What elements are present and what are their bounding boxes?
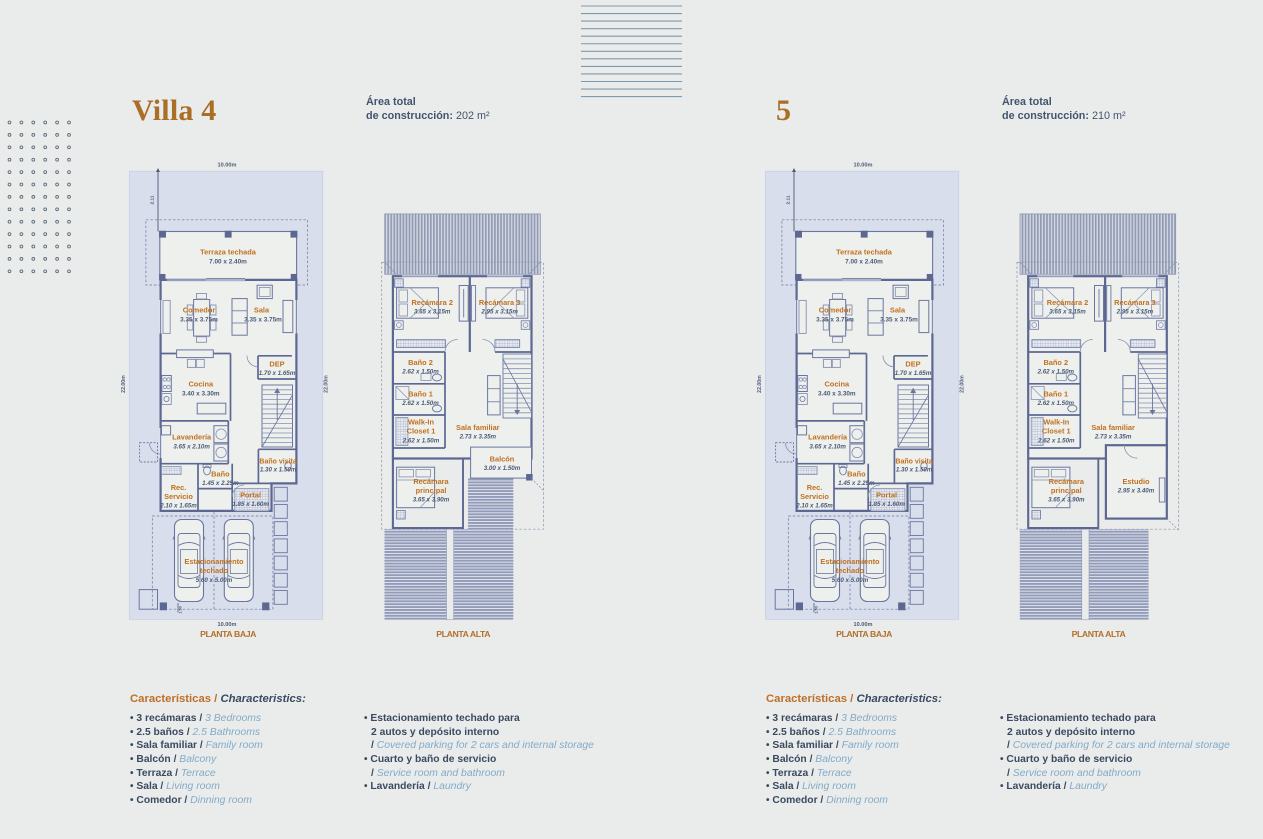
- svg-text:Lavandería: Lavandería: [172, 433, 212, 442]
- svg-text:PLANTA ALTA: PLANTA ALTA: [1072, 629, 1127, 639]
- svg-text:3.65 x 2.10m: 3.65 x 2.10m: [173, 444, 210, 451]
- svg-text:3.65 x 2.10m: 3.65 x 2.10m: [809, 444, 846, 451]
- svg-text:Servicio: Servicio: [800, 492, 829, 501]
- svg-text:22.00m: 22.00m: [757, 375, 763, 393]
- svg-text:1.70 x 1.65m: 1.70 x 1.65m: [895, 370, 932, 377]
- svg-text:PLANTA BAJA: PLANTA BAJA: [200, 629, 257, 639]
- svg-text:3.65 x 3.15m: 3.65 x 3.15m: [414, 309, 451, 316]
- svg-text:Baño: Baño: [847, 470, 866, 479]
- svg-text:3.65 x 3.15m: 3.65 x 3.15m: [1049, 309, 1086, 316]
- svg-text:1.85 x 1.60m: 1.85 x 1.60m: [232, 501, 269, 508]
- svg-text:Sala familiar: Sala familiar: [1091, 423, 1135, 432]
- svg-text:5.60 x 5.00m: 5.60 x 5.00m: [832, 577, 869, 584]
- svg-text:10.00m: 10.00m: [218, 622, 237, 628]
- svg-text:Cocina: Cocina: [824, 380, 850, 389]
- svg-text:10.00m: 10.00m: [854, 622, 873, 628]
- svg-text:22.00m: 22.00m: [324, 375, 330, 393]
- svg-text:Sala: Sala: [254, 306, 270, 315]
- svg-text:Comedor: Comedor: [183, 306, 216, 315]
- svg-text:3.35 x 3.75m: 3.35 x 3.75m: [180, 317, 218, 324]
- svg-text:10.00m: 10.00m: [854, 163, 873, 169]
- svg-text:Closet 1: Closet 1: [1042, 427, 1071, 436]
- svg-text:Recámara 2: Recámara 2: [1047, 298, 1089, 307]
- svg-text:Terraza techada: Terraza techada: [200, 248, 257, 257]
- svg-text:Closet 1: Closet 1: [407, 427, 436, 436]
- svg-text:22.00m: 22.00m: [960, 375, 966, 393]
- svg-text:3.35 x 3.75m: 3.35 x 3.75m: [244, 317, 282, 324]
- svg-text:2.62 x 1.50m: 2.62 x 1.50m: [402, 438, 440, 445]
- svg-text:PLANTA ALTA: PLANTA ALTA: [436, 629, 491, 639]
- svg-text:2.11: 2.11: [150, 195, 156, 204]
- svg-text:techado: techado: [200, 566, 229, 575]
- svg-text:Baño visita: Baño visita: [259, 458, 296, 465]
- svg-text:PLANTA BAJA: PLANTA BAJA: [836, 629, 893, 639]
- svg-text:Rec.: Rec.: [807, 483, 823, 492]
- svg-text:2.62 x 1.50m: 2.62 x 1.50m: [401, 400, 439, 407]
- svg-text:3.40 x 3.30m: 3.40 x 3.30m: [182, 391, 220, 398]
- svg-text:2.62 x 1.50m: 2.62 x 1.50m: [401, 369, 439, 376]
- svg-text:3.40 x 3.30m: 3.40 x 3.30m: [818, 391, 856, 398]
- svg-text:2.73 x 3.35m: 2.73 x 3.35m: [459, 434, 497, 441]
- svg-text:3.00 x 1.50m: 3.00 x 1.50m: [484, 465, 521, 472]
- svg-text:5.60 x 5.00m: 5.60 x 5.00m: [196, 577, 233, 584]
- svg-text:Cocina: Cocina: [188, 380, 214, 389]
- svg-text:2.62 x 1.50m: 2.62 x 1.50m: [1037, 400, 1075, 407]
- svg-text:3.65 x 3.90m: 3.65 x 3.90m: [1048, 497, 1085, 504]
- svg-text:1.30 x 1.50m: 1.30 x 1.50m: [260, 467, 297, 474]
- svg-text:2.62 x 1.50m: 2.62 x 1.50m: [1037, 369, 1075, 376]
- svg-text:22.00m: 22.00m: [121, 375, 127, 393]
- svg-text:3.65 x 3.90m: 3.65 x 3.90m: [413, 497, 450, 504]
- svg-text:Baño 2: Baño 2: [1043, 358, 1068, 367]
- svg-text:Sala familiar: Sala familiar: [456, 423, 500, 432]
- svg-text:2.10 x 1.65m: 2.10 x 1.65m: [795, 503, 833, 510]
- svg-text:3.35 x 3.75m: 3.35 x 3.75m: [880, 317, 918, 324]
- svg-text:Portal: Portal: [876, 491, 897, 500]
- svg-text:Estacionamiento: Estacionamiento: [184, 557, 244, 566]
- svg-text:2.95 x 3.40m: 2.95 x 3.40m: [1117, 488, 1155, 495]
- svg-text:Sala: Sala: [890, 306, 906, 315]
- svg-text:Baño visita: Baño visita: [895, 458, 932, 465]
- svg-text:Recámara: Recámara: [1049, 477, 1085, 486]
- svg-text:1.85 x 1.60m: 1.85 x 1.60m: [868, 501, 905, 508]
- svg-text:Estacionamiento: Estacionamiento: [820, 557, 880, 566]
- svg-text:Baño 2: Baño 2: [408, 358, 433, 367]
- svg-text:1.50: 1.50: [179, 606, 183, 613]
- svg-text:3.35 x 3.75m: 3.35 x 3.75m: [816, 317, 854, 324]
- svg-text:1.70 x 1.65m: 1.70 x 1.65m: [259, 370, 296, 377]
- svg-text:principal: principal: [1051, 486, 1082, 495]
- svg-text:2.10 x 1.65m: 2.10 x 1.65m: [159, 503, 197, 510]
- svg-text:2.11: 2.11: [786, 195, 792, 204]
- svg-text:2.95 x 3.15m: 2.95 x 3.15m: [1116, 309, 1154, 316]
- svg-text:2.95 x 3.15m: 2.95 x 3.15m: [480, 309, 518, 316]
- svg-text:Servicio: Servicio: [164, 492, 193, 501]
- svg-text:1.50: 1.50: [815, 606, 819, 613]
- svg-text:7.00 x 2.40m: 7.00 x 2.40m: [845, 259, 883, 266]
- svg-text:Comedor: Comedor: [819, 306, 852, 315]
- svg-text:DEP: DEP: [905, 360, 920, 369]
- svg-text:Baño 1: Baño 1: [408, 390, 433, 399]
- svg-text:10.00m: 10.00m: [218, 163, 237, 169]
- svg-text:Recámara 3: Recámara 3: [479, 298, 521, 307]
- svg-text:Estudio: Estudio: [1122, 477, 1150, 486]
- svg-text:2.62 x 1.50m: 2.62 x 1.50m: [1037, 438, 1075, 445]
- svg-text:Terraza techada: Terraza techada: [836, 248, 893, 257]
- svg-text:Walk-In: Walk-In: [1043, 418, 1069, 427]
- svg-text:Walk-In: Walk-In: [408, 418, 434, 427]
- svg-text:7.00 x 2.40m: 7.00 x 2.40m: [209, 259, 247, 266]
- svg-text:Recámara: Recámara: [413, 477, 449, 486]
- svg-text:Balcón: Balcón: [490, 455, 515, 464]
- svg-text:Recámara 2: Recámara 2: [411, 298, 453, 307]
- svg-text:Recámara 3: Recámara 3: [1114, 298, 1156, 307]
- svg-text:Baño 1: Baño 1: [1043, 390, 1068, 399]
- svg-text:1.30 x 1.50m: 1.30 x 1.50m: [896, 467, 933, 474]
- svg-text:DEP: DEP: [269, 360, 284, 369]
- svg-text:Rec.: Rec.: [171, 483, 187, 492]
- svg-text:Baño: Baño: [211, 470, 230, 479]
- svg-text:2.73 x 3.35m: 2.73 x 3.35m: [1094, 434, 1132, 441]
- svg-text:principal: principal: [416, 486, 447, 495]
- svg-text:Lavandería: Lavandería: [808, 433, 848, 442]
- svg-text:techado: techado: [836, 566, 865, 575]
- svg-text:Portal: Portal: [240, 491, 261, 500]
